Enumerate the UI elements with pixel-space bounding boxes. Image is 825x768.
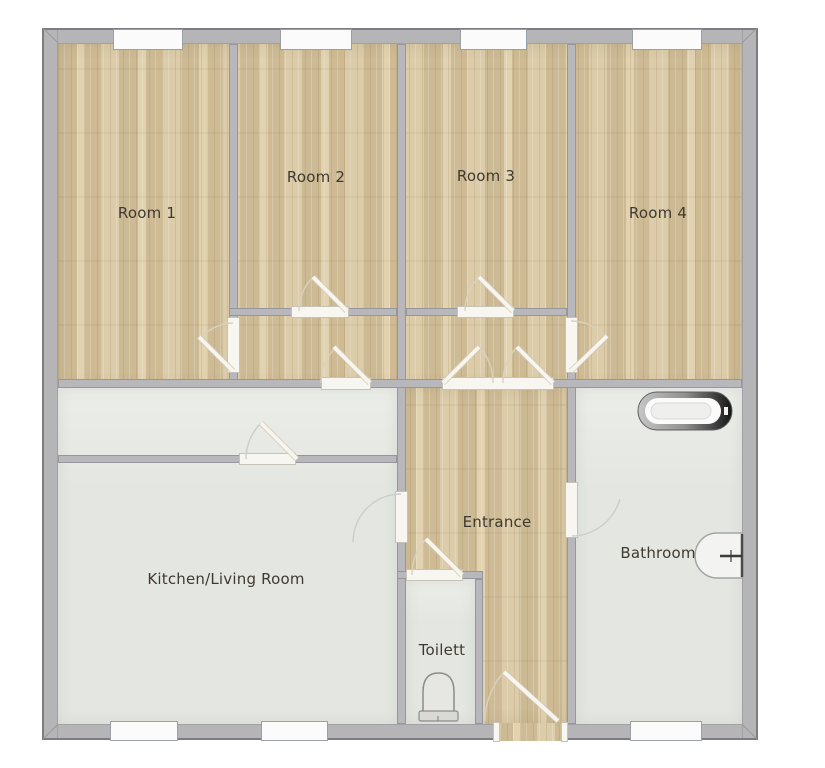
- window-room-1: [113, 29, 183, 50]
- wall-kitchen-inner: [58, 455, 397, 463]
- door-opening-room4: [566, 318, 577, 372]
- front-door-jamb-left: [494, 723, 499, 741]
- kitchen-living-room-label: Kitchen/Living Room: [147, 570, 304, 588]
- room-2-label: Room 2: [287, 168, 345, 186]
- front-door-opening: [494, 723, 567, 741]
- bathroom-label: Bathroom: [620, 544, 695, 562]
- door-opening-bathroom: [566, 483, 577, 537]
- door-opening-strip-kitchen: [240, 454, 295, 464]
- wall-toilet-right: [475, 579, 483, 724]
- door-opening-toilet: [407, 570, 462, 580]
- window-kitchen-left: [110, 721, 178, 741]
- door-opening-room1: [228, 318, 239, 372]
- room-4-label: Room 4: [629, 204, 687, 222]
- outer-wall-right: [742, 28, 758, 740]
- door-opening-room2: [292, 307, 348, 317]
- toilet-label: Toilett: [419, 641, 466, 659]
- entrance-label: Entrance: [463, 513, 532, 531]
- room-1-label: Room 1: [118, 204, 176, 222]
- door-opening-entrance-kitchen: [396, 492, 407, 542]
- window-room-3: [460, 29, 527, 50]
- wall-main-horizontal: [58, 379, 742, 388]
- window-room-4: [632, 29, 702, 50]
- door-opening-room3: [458, 307, 513, 317]
- window-kitchen-right: [261, 721, 328, 741]
- front-door-jamb-right: [562, 723, 567, 741]
- door-opening-entrance-hall-double: [443, 378, 553, 389]
- window-room-2: [280, 29, 352, 50]
- floor-plan: Room 1 Room 2 Room 3 Room 4 Entrance Kit…: [0, 0, 825, 768]
- room-3-label: Room 3: [457, 167, 515, 185]
- floor-kitchen-living-room: [58, 388, 397, 724]
- door-opening-hall-strip: [322, 378, 370, 389]
- window-bathroom: [630, 721, 702, 741]
- outer-wall-left: [42, 28, 58, 740]
